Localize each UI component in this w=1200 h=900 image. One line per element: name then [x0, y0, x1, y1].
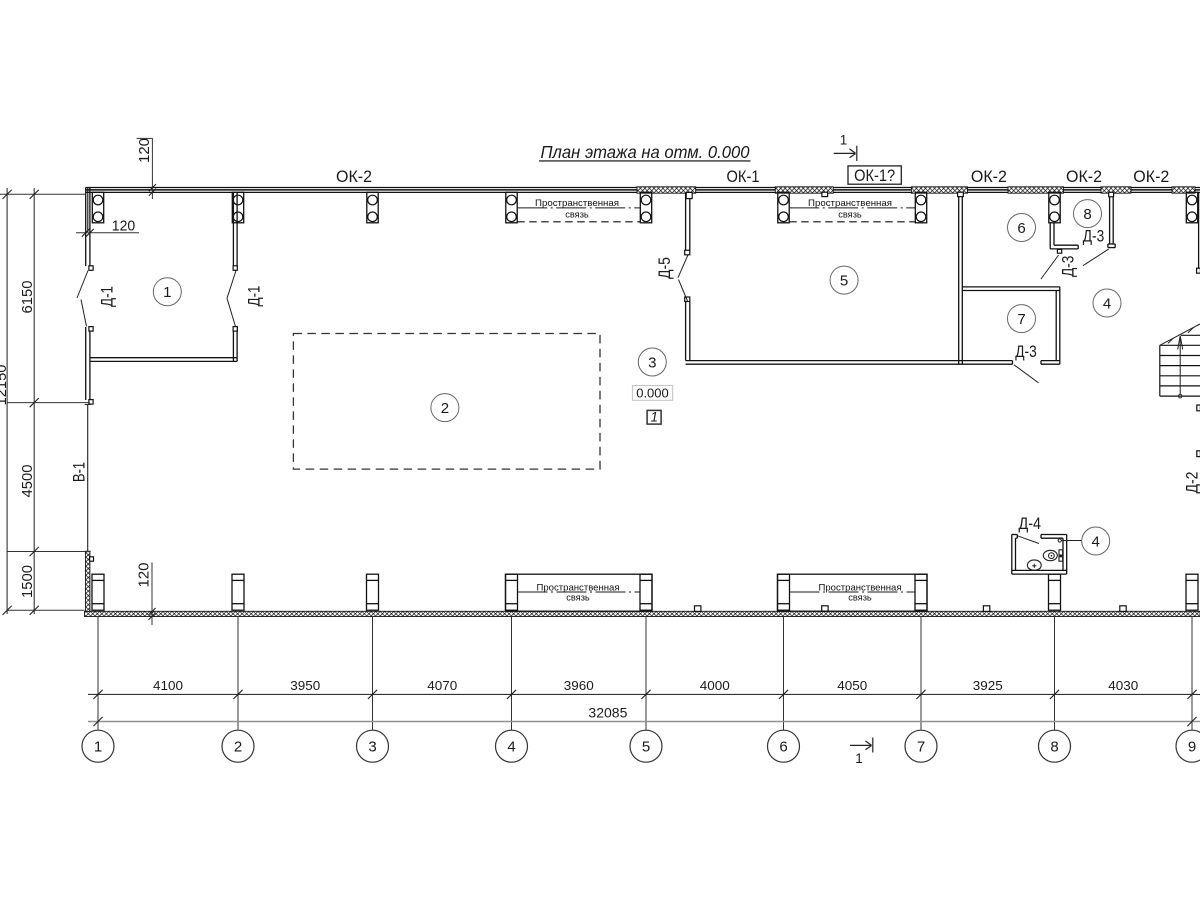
svg-text:2: 2 [441, 400, 449, 417]
svg-text:120: 120 [112, 218, 136, 235]
svg-text:4500: 4500 [19, 465, 36, 498]
svg-text:8: 8 [1083, 206, 1091, 223]
svg-text:6150: 6150 [19, 281, 36, 314]
svg-text:4050: 4050 [837, 678, 867, 693]
svg-text:32085: 32085 [588, 706, 627, 721]
svg-text:4: 4 [1092, 533, 1100, 550]
svg-text:4100: 4100 [153, 678, 183, 693]
svg-text:7: 7 [1017, 311, 1025, 328]
svg-text:3: 3 [648, 354, 656, 371]
svg-text:Д-5: Д-5 [656, 257, 674, 279]
svg-text:4: 4 [507, 738, 515, 755]
svg-text:ОК-1: ОК-1 [727, 168, 760, 186]
svg-text:ОК-2: ОК-2 [1133, 168, 1169, 186]
svg-text:Д-1: Д-1 [246, 286, 264, 307]
svg-text:ОК-1?: ОК-1? [854, 167, 895, 185]
svg-text:Д-3: Д-3 [1060, 256, 1078, 278]
svg-text:связь: связь [565, 209, 589, 220]
svg-text:связь: связь [838, 209, 862, 220]
svg-text:Пространственная: Пространственная [535, 197, 619, 208]
svg-text:5: 5 [642, 738, 650, 755]
svg-text:120: 120 [136, 563, 153, 588]
svg-text:9: 9 [1188, 738, 1196, 755]
svg-text:4070: 4070 [427, 678, 457, 693]
svg-text:1: 1 [94, 738, 102, 755]
svg-text:План этажа на отм. 0.000: План этажа на отм. 0.000 [541, 142, 750, 162]
svg-text:8: 8 [1050, 738, 1058, 755]
svg-text:120: 120 [136, 138, 153, 163]
svg-text:3950: 3950 [290, 678, 320, 693]
svg-text:Д-4: Д-4 [1019, 515, 1042, 533]
svg-text:ОК-2: ОК-2 [971, 168, 1007, 186]
svg-text:1: 1 [855, 751, 863, 766]
svg-text:Пространственная: Пространственная [808, 197, 892, 208]
svg-text:ОК-2: ОК-2 [336, 168, 372, 186]
svg-text:0.000: 0.000 [636, 386, 669, 401]
svg-text:4: 4 [1103, 295, 1111, 312]
svg-text:3: 3 [368, 738, 376, 755]
svg-text:Д-1: Д-1 [99, 286, 117, 307]
svg-text:Д-3: Д-3 [1015, 343, 1037, 361]
svg-text:1500: 1500 [19, 565, 36, 598]
svg-text:7: 7 [917, 738, 925, 755]
svg-text:В-1: В-1 [71, 462, 89, 482]
svg-text:4030: 4030 [1108, 678, 1138, 693]
svg-text:ОК-2: ОК-2 [1066, 168, 1102, 186]
svg-text:5: 5 [840, 272, 848, 289]
svg-text:12150: 12150 [0, 365, 10, 406]
svg-text:3925: 3925 [973, 678, 1003, 693]
svg-text:связь: связь [566, 591, 590, 602]
svg-text:2: 2 [234, 738, 242, 755]
svg-text:6: 6 [779, 738, 787, 755]
svg-text:6: 6 [1017, 220, 1025, 237]
svg-text:1: 1 [840, 133, 848, 148]
svg-text:1: 1 [163, 284, 171, 301]
svg-text:Д-3: Д-3 [1083, 228, 1105, 246]
svg-text:связь: связь [848, 591, 872, 602]
svg-text:4000: 4000 [700, 678, 730, 693]
svg-text:1: 1 [651, 410, 659, 425]
svg-text:Д-2: Д-2 [1184, 472, 1200, 494]
svg-text:3960: 3960 [564, 678, 594, 693]
